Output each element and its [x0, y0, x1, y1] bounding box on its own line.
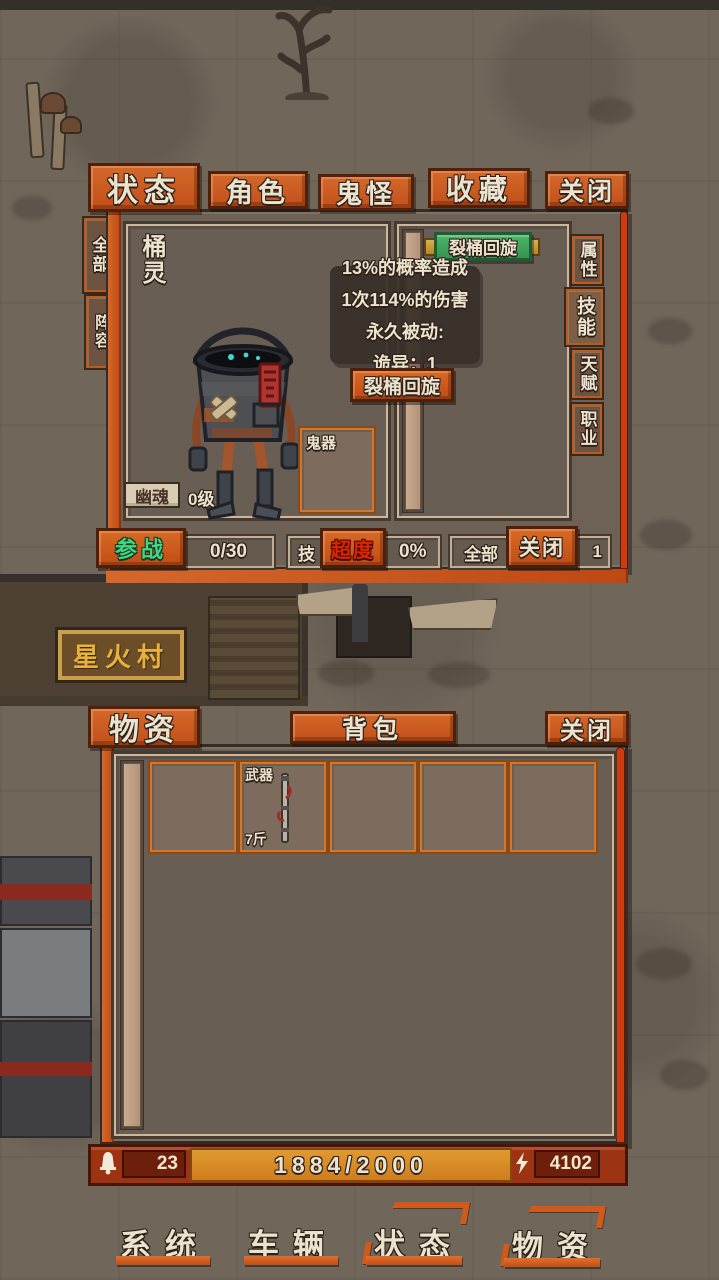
- sidetab-profession-label: 职业: [575, 410, 600, 448]
- backpack-scrollbar-thumb[interactable]: [123, 763, 141, 1127]
- bottom-nav: 系统 车辆 状态 物资: [0, 1198, 719, 1280]
- tab-close-status-label: 关闭: [559, 172, 615, 208]
- status-window-left-edge: [108, 211, 121, 569]
- nav-vehicle-underline: [244, 1256, 338, 1265]
- debris: [588, 98, 634, 124]
- tab-ghost[interactable]: 鬼怪: [318, 174, 414, 211]
- supplies-left-edge: [102, 746, 114, 1142]
- ghost-gear-slot-label: 鬼器: [306, 432, 336, 453]
- item-slot-5[interactable]: [510, 762, 596, 852]
- status-window-bottom-edge: [106, 569, 628, 583]
- weapon-staff-icon: [276, 772, 294, 844]
- supplies-right-edge: [617, 748, 624, 1142]
- post-cap: [40, 92, 66, 114]
- debris: [640, 520, 692, 550]
- close-button-footer-label: 关闭: [519, 532, 565, 562]
- sidetab-skills-label: 技能: [571, 296, 598, 338]
- supplies-close-label: 关闭: [560, 711, 614, 746]
- ghost-gear-slot[interactable]: 鬼器: [300, 428, 374, 512]
- tab-supplies[interactable]: 物资: [88, 706, 200, 748]
- tab-supplies-label: 物资: [109, 705, 179, 749]
- item-slot-1[interactable]: [150, 762, 236, 852]
- tab-status-label: 状态: [107, 165, 181, 210]
- all-prefix: 全部: [464, 540, 498, 565]
- energy-count-box: 4102: [534, 1150, 600, 1178]
- post-cap: [60, 116, 82, 134]
- tab-character[interactable]: 角色: [208, 171, 308, 209]
- tab-close-status[interactable]: 关闭: [545, 171, 629, 209]
- tooltip-line-1: 13%的概率造成: [342, 254, 468, 280]
- sidetab-profession[interactable]: 职业: [572, 404, 602, 454]
- debris: [12, 196, 52, 220]
- join-count-value: 0/30: [210, 541, 247, 563]
- wood-post: [25, 82, 44, 159]
- bell-count-value: 23: [157, 1153, 178, 1175]
- speed-value: 0%: [399, 541, 426, 563]
- item-slot-2-weapon[interactable]: 武器 7斤: [240, 762, 326, 852]
- debris: [636, 948, 692, 980]
- backpack-scrollbar-track[interactable]: [120, 760, 144, 1130]
- sidetab-talent-label: 天赋: [575, 355, 600, 393]
- sidetab-skills[interactable]: 技能: [566, 289, 603, 345]
- skill-button-label: 裂桶回旋: [364, 372, 440, 399]
- nav-status-underline: [366, 1256, 462, 1265]
- dead-tree: [255, 0, 365, 100]
- nav-supplies-bracket-top: [528, 1206, 605, 1212]
- close-button-footer[interactable]: 关闭: [506, 526, 578, 568]
- skill-tooltip: 13%的概率造成 1次114%的伤害 永久被动: 诡异：1: [330, 266, 480, 364]
- tab-status[interactable]: 状态: [88, 163, 200, 212]
- skill-button[interactable]: 裂桶回旋: [350, 368, 454, 402]
- sidetab-talent[interactable]: 天赋: [572, 350, 602, 398]
- soul-type-badge: 幽魂: [124, 482, 180, 508]
- truck-lower: [0, 1020, 92, 1138]
- tab-character-label: 角色: [226, 171, 290, 210]
- energy-count-value: 4102: [550, 1153, 592, 1175]
- item-slot-4[interactable]: [420, 762, 506, 852]
- stall-debris: [318, 660, 374, 686]
- bell-count-box: 23: [122, 1150, 186, 1178]
- join-battle-label: 参战: [115, 532, 167, 564]
- stall-awning: [408, 598, 498, 630]
- weapon-type-label: 武器: [245, 765, 273, 785]
- join-battle-button[interactable]: 参战: [96, 528, 186, 568]
- tab-collection-label: 收藏: [446, 168, 512, 208]
- obscured-value: 1: [593, 542, 602, 562]
- truck-stripe: [0, 884, 92, 900]
- nav-supplies-underline: [504, 1258, 600, 1267]
- item-slot-3[interactable]: [330, 762, 416, 852]
- debris: [648, 318, 692, 344]
- tooltip-line-2: 1次114%的伤害: [341, 286, 468, 312]
- debris: [660, 1060, 708, 1090]
- status-window-right-edge: [621, 212, 627, 568]
- skill-prefix: 技: [298, 540, 315, 565]
- villager: [352, 584, 368, 642]
- capacity-value: 1884/2000: [274, 1152, 428, 1179]
- transcend-button[interactable]: 超度: [320, 528, 386, 568]
- sidetab-attributes[interactable]: 属性: [572, 236, 602, 284]
- truck-light: [0, 1062, 92, 1076]
- bag-button-label: 背包: [342, 710, 404, 746]
- village-sign-text: 星火村: [73, 637, 169, 674]
- nav-status-bracket-top: [392, 1202, 469, 1208]
- character-name: 桶灵: [134, 234, 169, 304]
- sidetab-attributes-label: 属性: [575, 241, 600, 279]
- stall-debris: [428, 662, 490, 688]
- character-level: 0级: [188, 485, 214, 510]
- tooltip-line-3: 永久被动:: [366, 318, 444, 344]
- tab-collection[interactable]: 收藏: [428, 168, 530, 208]
- capacity-bar: 1884/2000: [190, 1148, 512, 1182]
- lightning-icon: [514, 1152, 530, 1174]
- nav-system-underline: [116, 1256, 210, 1265]
- supplies-close-button[interactable]: 关闭: [545, 711, 629, 745]
- village-sign: 星火村: [58, 630, 184, 680]
- transcend-label: 超度: [331, 534, 375, 563]
- tab-ghost-label: 鬼怪: [336, 174, 396, 211]
- weapon-weight-label: 7斤: [245, 829, 267, 849]
- bell-icon: [98, 1151, 118, 1175]
- bag-button[interactable]: 背包: [290, 711, 456, 744]
- soul-type-badge-label: 幽魂: [135, 483, 169, 508]
- truck-body: [0, 928, 92, 1018]
